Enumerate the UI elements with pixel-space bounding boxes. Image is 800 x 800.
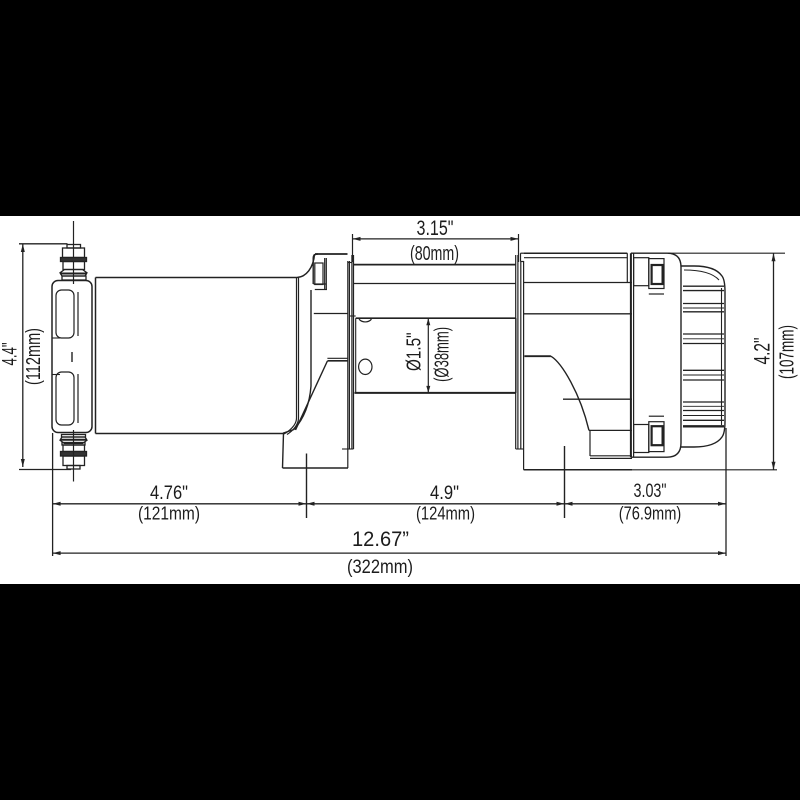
svg-text:4.4": 4.4" bbox=[0, 343, 22, 366]
svg-text:Ø1.5": Ø1.5" bbox=[404, 332, 426, 371]
svg-text:(121mm): (121mm) bbox=[138, 504, 200, 524]
svg-text:12.67”: 12.67” bbox=[352, 528, 409, 551]
svg-text:(76.9mm): (76.9mm) bbox=[619, 504, 682, 524]
svg-text:(112mm): (112mm) bbox=[23, 328, 45, 385]
svg-text:3.15": 3.15" bbox=[417, 217, 454, 240]
svg-text:(80mm): (80mm) bbox=[410, 243, 459, 265]
svg-text:(Ø38mm): (Ø38mm) bbox=[432, 327, 454, 382]
svg-text:(124mm): (124mm) bbox=[416, 504, 475, 524]
svg-text:(107mm): (107mm) bbox=[776, 325, 799, 379]
svg-text:4.76": 4.76" bbox=[150, 483, 188, 504]
svg-text:3.03": 3.03" bbox=[634, 481, 667, 502]
svg-text:4.9": 4.9" bbox=[430, 483, 459, 504]
svg-text:4.2": 4.2" bbox=[750, 338, 775, 365]
svg-text:(322mm): (322mm) bbox=[347, 556, 413, 578]
